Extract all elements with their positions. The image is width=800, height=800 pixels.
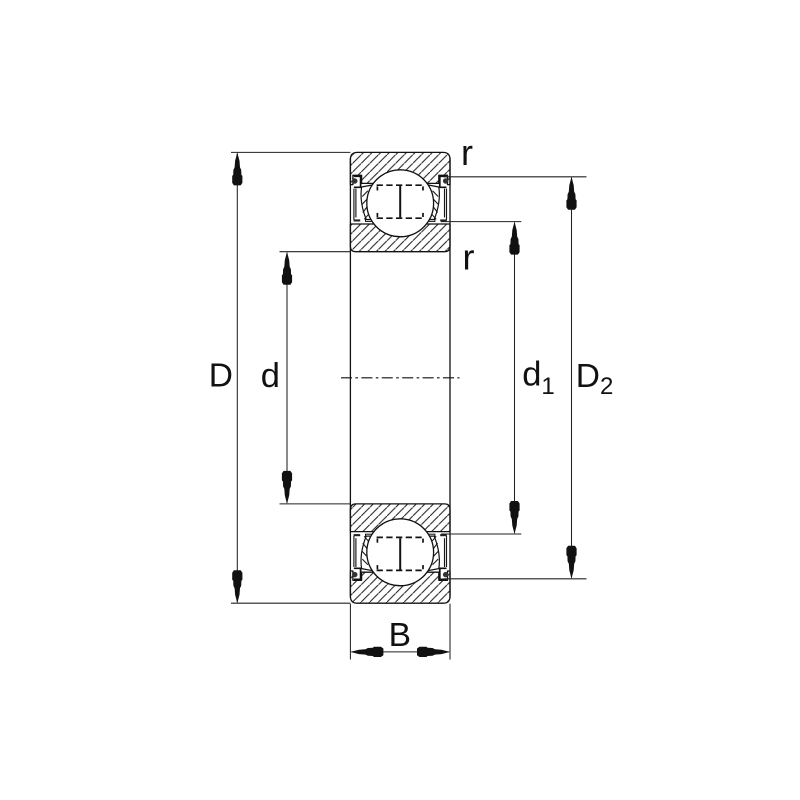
svg-text:B: B (389, 617, 411, 654)
svg-text:D: D (209, 357, 233, 394)
svg-text:r: r (463, 237, 475, 278)
svg-text:d: d (261, 357, 280, 395)
svg-text:r: r (461, 132, 473, 173)
